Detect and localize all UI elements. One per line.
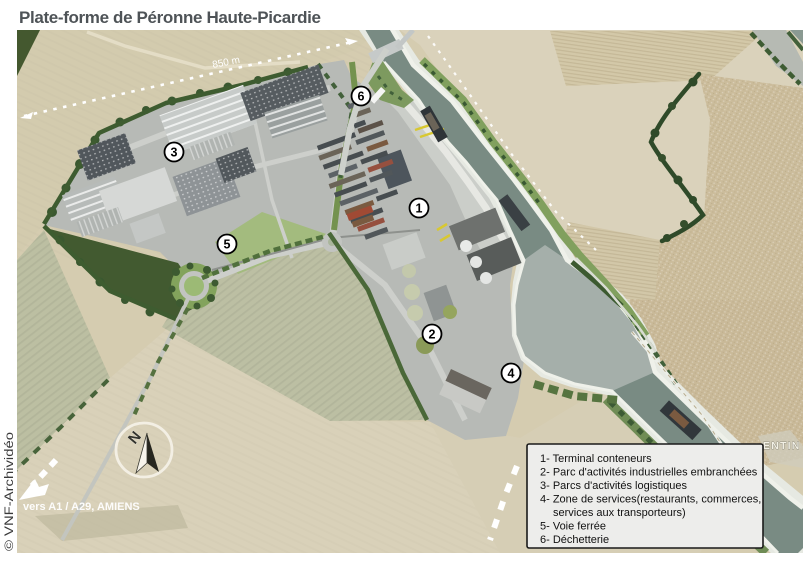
svg-text:services aux transporteurs): services aux transporteurs) <box>553 507 686 519</box>
svg-text:2- Parc d'activités industriel: 2- Parc d'activités industrielles embran… <box>540 467 758 479</box>
svg-text:© VNF-Archividéo: © VNF-Archividéo <box>4 432 16 551</box>
svg-text:vers A1 / A29, AMIENS: vers A1 / A29, AMIENS <box>23 501 140 513</box>
svg-text:6- Déchetterie: 6- Déchetterie <box>540 534 609 546</box>
svg-text:ENTIN: ENTIN <box>763 440 801 452</box>
svg-text:5: 5 <box>224 238 231 252</box>
svg-text:3- Parcs d'activités logistiqu: 3- Parcs d'activités logistiques <box>540 480 687 492</box>
svg-text:3: 3 <box>171 146 178 160</box>
svg-text:1- Terminal conteneurs: 1- Terminal conteneurs <box>540 453 652 465</box>
svg-text:1: 1 <box>416 202 423 216</box>
svg-text:5- Voie ferrée: 5- Voie ferrée <box>540 521 606 533</box>
svg-text:4: 4 <box>508 367 515 381</box>
svg-text:6: 6 <box>358 90 365 104</box>
svg-text:Plate-forme de Péronne Haute-P: Plate-forme de Péronne Haute-Picardie <box>19 8 321 27</box>
svg-text:4- Zone de services(restaurant: 4- Zone de services(restaurants, commerc… <box>540 494 761 506</box>
svg-text:2: 2 <box>429 328 436 342</box>
